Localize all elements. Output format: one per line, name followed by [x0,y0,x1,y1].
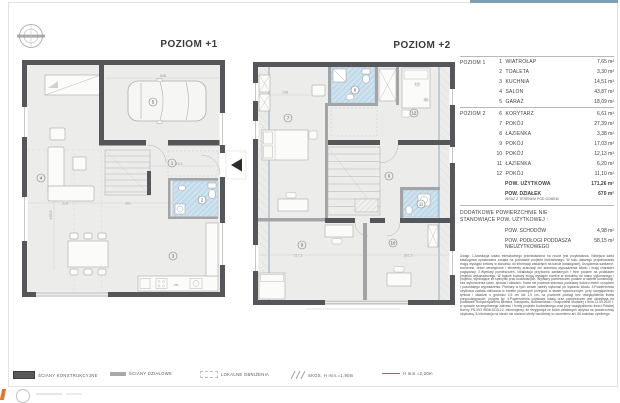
dim-label: 361 [125,202,131,206]
legend-label: ŚCIANY KONSTRUKCYJNE [38,373,98,378]
dim-label: 318 [62,202,68,206]
table-row: 5GARAŻ18,09 m² [493,97,614,107]
partner-logo-cutoff [16,389,30,403]
kitchen-zm-tag: ZM [174,283,179,287]
table-row: 7POKÓJ27,39 m² [493,119,614,129]
local-drop-swatch [200,371,218,378]
svg-text:10: 10 [391,241,396,246]
floor-plan-level-2: 148 7,5 58 517,5 381,5 6 7 8 9 10 11 12 [250,55,460,315]
legal-notes: Uwagi: 1.Aranżacja lokalu mieszkalnego p… [460,255,614,317]
structural-wall-swatch [13,371,35,379]
wall-bath8-room12 [396,67,399,105]
additional-row: POW. SCHODÓW4,98 m² [460,228,614,234]
legend-label: SKOS, H min.=1,90m [308,373,354,378]
table-rule [460,205,614,206]
table-row: 10POKÓJ12,13 m² [493,149,614,159]
table-row: 9POKÓJ17,03 m² [493,139,614,149]
legend-item-local-drops: LOKALNE OBNIŻENIA [200,371,269,378]
plan-title-level-1: POZIOM +1 [129,39,249,50]
legend-label: LOKALNE OBNIŻENIA [221,372,269,377]
floor-plan-level-1: ZM 548 443,5 318 361 435,5 1 [10,55,250,305]
table-row: 1WIATROŁAP7,65 m² [493,57,614,67]
hmin-line-swatch [382,373,400,375]
additional-areas-header: DODATKOWE POWIERZCHNIE NIE STANOWIĄCE PO… [460,210,614,224]
logo-text-placeholder [36,393,62,395]
area-table: POZIOM 1 1WIATROŁAP7,65 m² 2TOALETA3,30 … [460,56,614,317]
legend-item-partition-walls: ŚCIANY DZIAŁOWE [110,371,172,376]
logo-text-placeholder [66,393,82,395]
dim-label: 548 [160,74,166,78]
legend-item-slope: SKOS, H min.=1,90m [290,371,354,379]
additional-row: POW. PODŁOGI PODDASZA NIEUŻYTKOWEGO 58,1… [460,238,614,250]
table-row: 3KUCHNIA14,51 m² [493,77,614,87]
compass-icon [14,22,50,52]
toilet-room [173,181,218,217]
table-row: 8ŁAZIENKA3,38 m² [493,129,614,139]
dim-label: 381,5 [404,253,413,257]
legend-label: H min.=2,20m [403,371,433,376]
plan-title-level-2: POZIOM +2 [362,40,482,51]
table-row: 2TOALETA3,30 m² [493,67,614,77]
dim-label: 58 [424,98,428,102]
table-section-level1: POZIOM 1 1WIATROŁAP7,65 m² 2TOALETA3,30 … [460,57,614,107]
table-row: 11ŁAZIENKA6,20 m² [493,159,614,169]
closet-wardrobe [379,69,396,101]
bathroom8 [331,67,375,103]
partition-wall-swatch [110,372,126,376]
svg-text:11: 11 [419,202,424,207]
wall-room7-right [325,103,328,218]
legend-item-structural-walls: ŚCIANY KONSTRUKCYJNE [13,371,98,379]
attic-hatch-box [355,199,378,212]
car [128,79,206,124]
plot-area-row: POW. DZIAŁEK WRAZ Z TERENEM POD DOMEM 67… [460,189,614,205]
section-label: POZIOM 2 [460,108,493,179]
table-row: 12POKÓJ11,10 m² [493,169,614,179]
legend-item-hmin: H min.=2,20m [382,371,433,376]
dim-label: 148 [282,91,288,95]
logo-tick-mark [0,389,6,400]
dim-label: 7,5 [415,83,420,87]
sideboard [45,75,101,95]
wall-room9-room10 [363,223,367,300]
total-usable-row: POW. UŻYTKOWA171,26 m² [460,179,614,189]
top-accent-bar [470,0,618,3]
legend-label: ŚCIANY DZIAŁOWE [129,371,172,376]
table-row: 4SALON43,87 m² [493,87,614,97]
table-section-level2: POZIOM 2 6KORYTARZ6,61 m² 7POKÓJ27,39 m²… [460,108,614,179]
dim-label: 517,5 [294,253,303,257]
section-label: POZIOM 1 [460,57,493,107]
dim-label: 435,5 [49,211,53,220]
svg-text:12: 12 [412,111,417,116]
slope-hatch-swatch [290,371,305,379]
table-row: 6KORYTARZ6,61 m² [493,108,614,118]
dining-table [68,233,108,275]
